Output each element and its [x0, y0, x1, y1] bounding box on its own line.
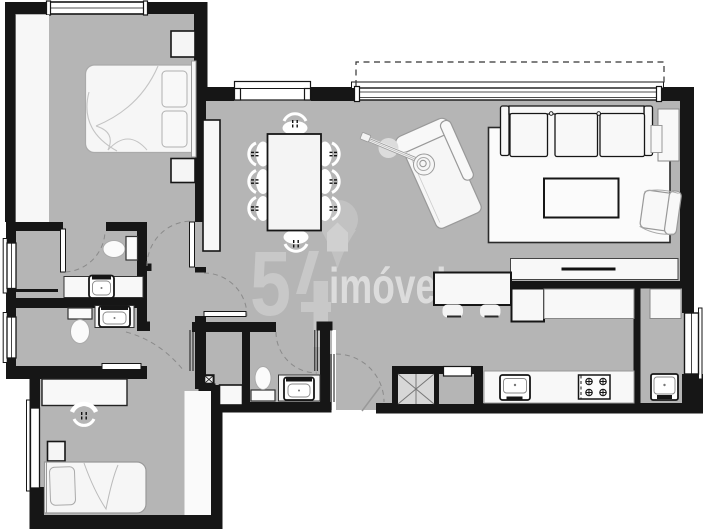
svg-text:5: 5 [250, 233, 291, 335]
